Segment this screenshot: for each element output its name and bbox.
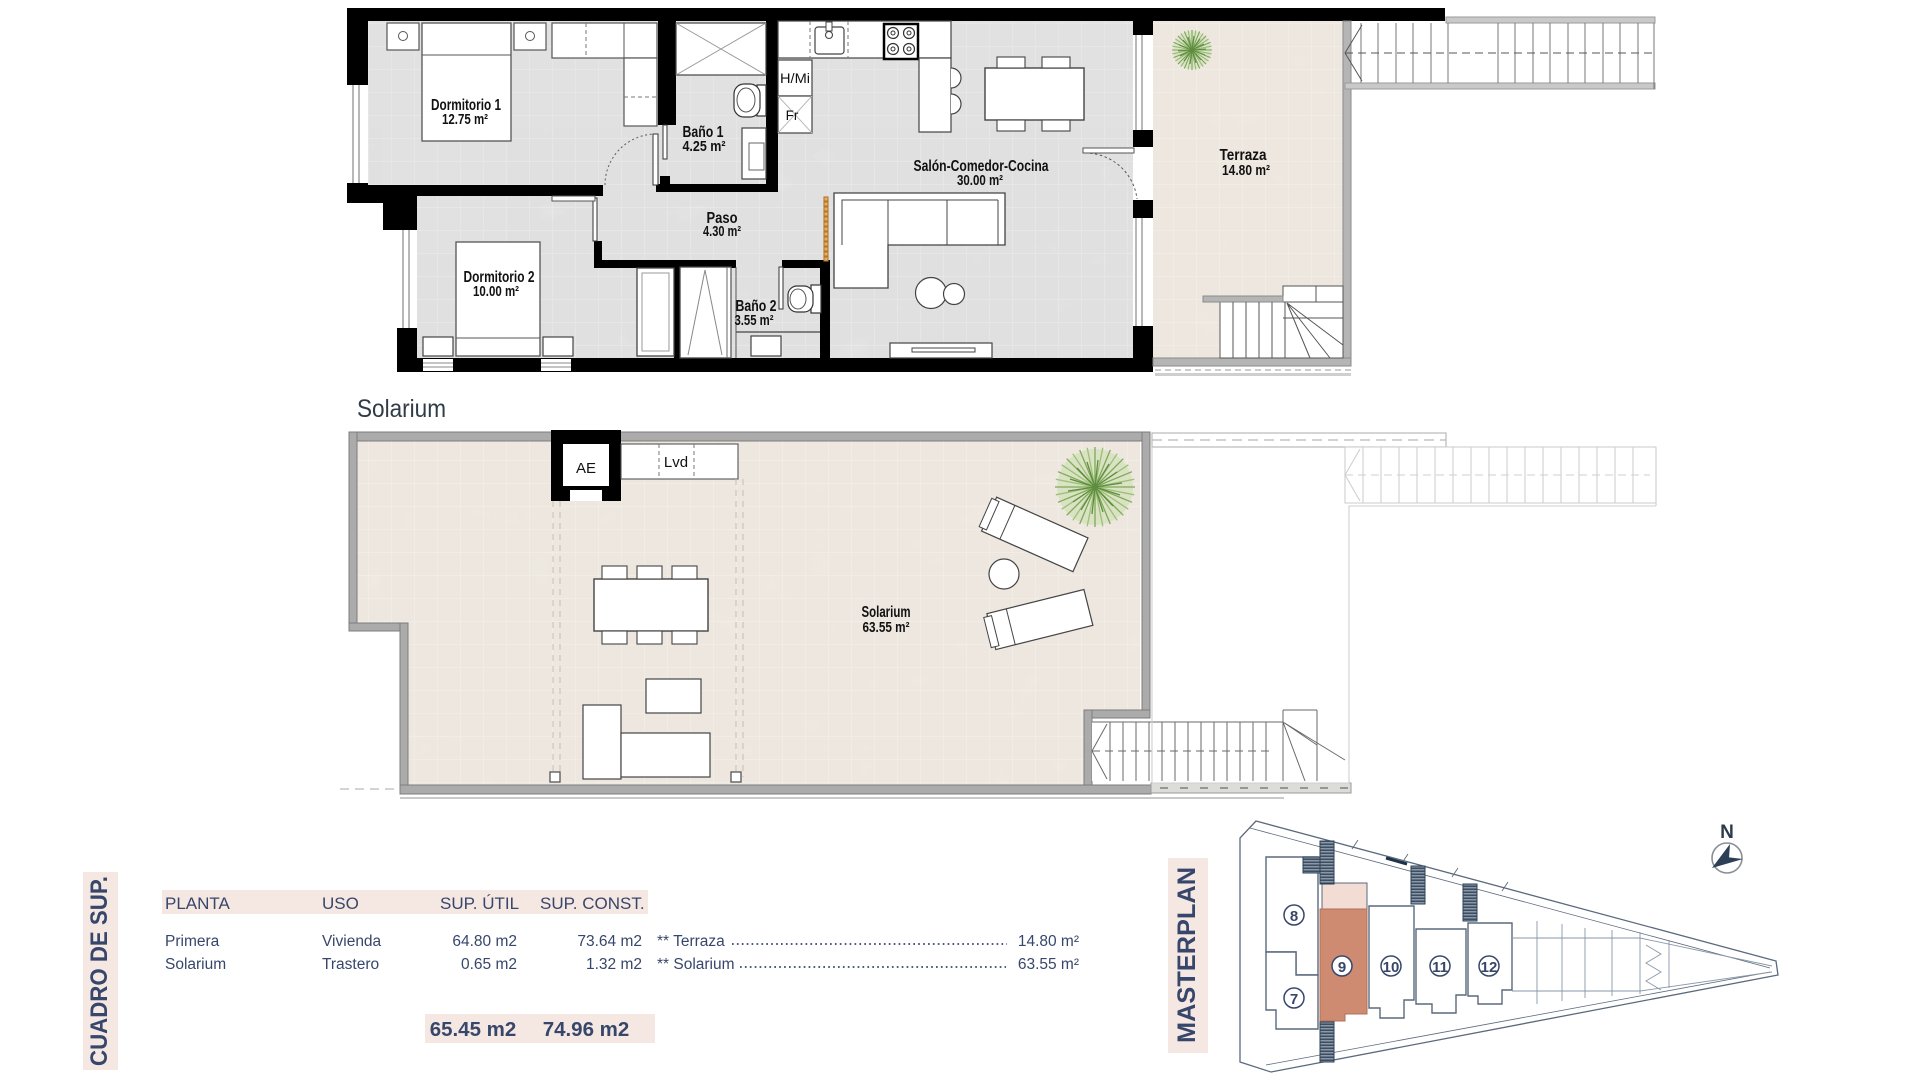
svg-text:4.30 m²: 4.30 m² [703,224,741,240]
svg-text:63.55 m²: 63.55 m² [863,620,910,636]
svg-text:** Solarium: ** Solarium [657,956,735,973]
svg-text:12.75 m²: 12.75 m² [442,112,488,128]
svg-text:9: 9 [1338,959,1346,976]
svg-text:10.00 m²: 10.00 m² [473,284,519,300]
svg-text:8: 8 [1290,908,1298,925]
svg-text:** Terraza: ** Terraza [657,933,725,950]
svg-text:H/Mi: H/Mi [780,71,810,86]
svg-text:SUP. ÚTIL: SUP. ÚTIL [440,894,519,913]
svg-text:Fr: Fr [786,108,799,123]
svg-text:14.80 m²: 14.80 m² [1222,163,1270,179]
svg-text:Vivienda: Vivienda [322,933,382,950]
svg-text:11: 11 [1432,959,1448,976]
svg-text:14.80 m²: 14.80 m² [1018,933,1079,950]
svg-text:Solarium: Solarium [165,956,226,973]
svg-text:CUADRO DE SUP.: CUADRO DE SUP. [86,876,113,1066]
svg-text:0.65 m2: 0.65 m2 [461,956,517,973]
svg-text:N: N [1720,822,1734,843]
svg-text:74.96 m2: 74.96 m2 [543,1018,630,1041]
svg-text:Solarium: Solarium [862,604,911,621]
svg-text:65.45 m2: 65.45 m2 [430,1018,517,1041]
svg-text:30.00 m²: 30.00 m² [957,173,1003,189]
svg-text:1.32 m2: 1.32 m2 [586,956,642,973]
svg-text:64.80 m2: 64.80 m2 [452,933,517,950]
svg-text:12: 12 [1481,959,1498,976]
svg-text:Trastero: Trastero [322,956,379,973]
svg-text:MASTERPLAN: MASTERPLAN [1173,867,1201,1043]
svg-text:PLANTA: PLANTA [165,894,231,913]
svg-text:63.55 m²: 63.55 m² [1018,956,1079,973]
svg-text:Lvd: Lvd [664,454,688,471]
svg-text:Terraza: Terraza [1220,147,1267,164]
svg-text:Solarium: Solarium [357,395,446,423]
svg-text:SUP. CONST.: SUP. CONST. [540,894,645,913]
svg-text:7: 7 [1290,991,1298,1008]
svg-text:10: 10 [1383,959,1400,976]
svg-text:3.55 m²: 3.55 m² [735,313,774,329]
svg-text:4.25 m²: 4.25 m² [683,139,726,155]
svg-text:AE: AE [576,460,596,477]
svg-text:73.64 m2: 73.64 m2 [577,933,642,950]
svg-text:USO: USO [322,894,359,913]
svg-text:Primera: Primera [165,933,220,950]
